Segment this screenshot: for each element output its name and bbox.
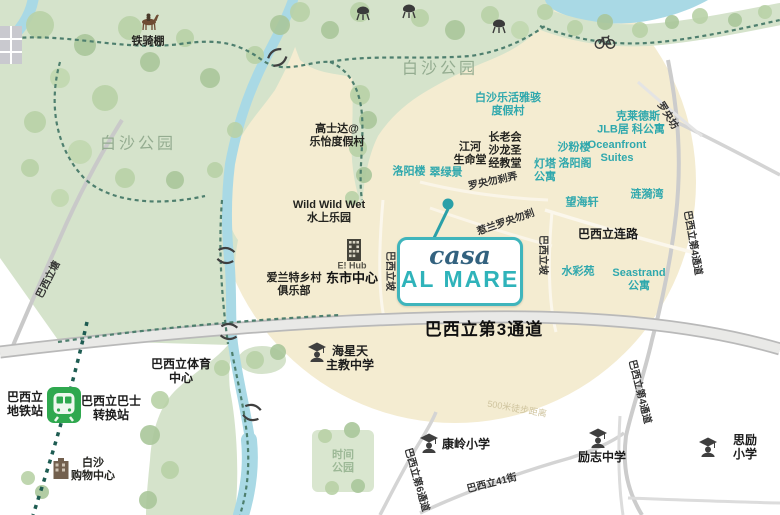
label-lohas-resort: 白沙乐活雅骇 度假村 [475, 92, 541, 118]
label-oceanfront-suites: Oceanfront Suites [588, 139, 647, 165]
map-labels: 铁骑棚高士达@ 乐怡度假村白沙公园白沙公园白沙乐活雅骇 度假村江河 生命堂长老会… [0, 0, 780, 515]
label-sports-centre: 巴西立体育 中心 [151, 357, 211, 385]
label-ke-lai-de-si: 克莱德斯 [616, 111, 660, 124]
label-ripple-bay: 涟漪湾 [631, 189, 664, 202]
label-pasir-ris-tang: 巴西立塘 [35, 260, 64, 301]
label-presbyterian-church: 长老会 沙龙圣 经教堂 [489, 132, 522, 171]
label-white-sands-mall: 白沙 购物中心 [71, 457, 115, 483]
label-si-li-primary: 思励小学 [728, 433, 763, 461]
label-kang-ling-primary: 康岭小学 [442, 437, 490, 451]
map-canvas: 铁骑棚高士达@ 乐怡度假村白沙公园白沙公园白沙乐活雅骇 度假村江河 生命堂长老会… [0, 0, 780, 515]
label-luo-yang-lou: 洛阳楼 [393, 166, 426, 179]
label-pasir-ris-dr4-upper: 巴西立第4通道 [680, 210, 703, 277]
label-pasir-ris-st41: 巴西立41街 [466, 472, 518, 496]
label-cui-lv-jing: 翠绿景 [430, 167, 463, 180]
label-watercolours: 水彩苑 [562, 266, 595, 279]
label-lighthouse-apt: 灯塔 公寓 [534, 158, 556, 184]
label-pasir-ris-dr3: 巴西立第3通道 [425, 320, 543, 340]
label-river-life-church: 江河 生命堂 [454, 141, 487, 167]
label-pasir-ris-dr4-lower: 巴西立第4通道 [625, 359, 652, 425]
label-lorong-loyang-besar: 罗央勿刹弄 [467, 171, 518, 193]
label-pasir-ris-rise-west: 巴西立坡 [383, 251, 395, 291]
label-pasir-ris-dr6: 巴西立第6通道 [401, 447, 430, 513]
label-mrt-station: 巴西立 地铁站 [7, 390, 43, 418]
label-pasir-ris-park-center: 白沙公园 [402, 61, 478, 80]
label-pasir-ris-link: 巴西立连路 [578, 227, 638, 241]
casa-al-mare-logo: casa AL MARE [397, 237, 523, 306]
label-seastrand: Seastrand 公寓 [612, 267, 665, 293]
label-jlb-residence: JLB居 科公寓 [597, 124, 665, 137]
label-iron-rider-shed: 铁骑棚 [132, 36, 165, 49]
label-time-park: 时间 公园 [332, 449, 354, 475]
label-wild-wild-wet: Wild Wild Wet 水上乐园 [293, 199, 365, 225]
label-luo-yang-ge: 洛阳阁 [559, 158, 592, 171]
label-aranda-country-club: 爱兰特乡村 俱乐部 [267, 272, 322, 298]
label-radius-note: 500米徒步距离 [487, 399, 548, 420]
label-sha-fen-lou: 沙粉楼 [558, 142, 591, 155]
label-bus-interchange: 巴西立巴士 转换站 [81, 394, 141, 422]
logo-main-text: AL MARE [400, 269, 520, 291]
label-pasir-ris-rise-east: 巴西立坡 [536, 235, 548, 275]
label-li-zhi-secondary: 励志中学 [578, 450, 626, 464]
label-costa-sands-resort: 高士达@ 乐怡度假村 [310, 123, 365, 149]
label-sea-esta: 望海轩 [566, 197, 599, 210]
label-downtown-east: 东市中心 [326, 270, 378, 285]
label-pasir-ris-park-west: 白沙公园 [100, 136, 176, 155]
label-hai-sing-catholic: 海星天 主教中学 [326, 344, 374, 372]
label-jalan-loyang-besar: 惹兰罗央勿刹 [476, 208, 537, 239]
